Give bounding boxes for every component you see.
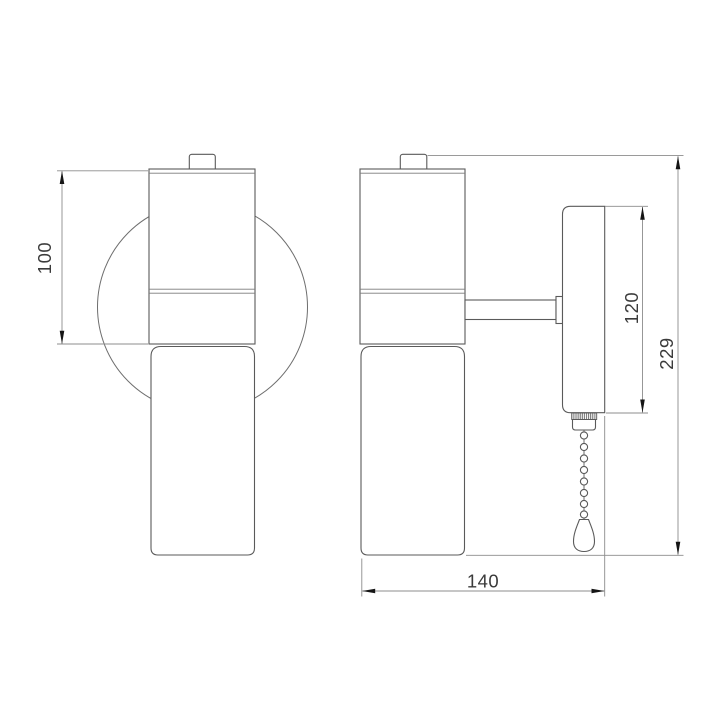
drawing-canvas: 100 — [0, 0, 720, 720]
chain-bead — [580, 466, 587, 473]
arrow-right-icon — [592, 589, 605, 594]
dimension-text-120: 120 — [621, 292, 642, 324]
chain-bead — [580, 432, 587, 439]
chain-bead — [580, 443, 587, 450]
arrow-up-icon — [640, 207, 645, 220]
technical-drawing-svg: 100 — [0, 0, 720, 720]
chain-bead — [580, 500, 587, 507]
arrow-down-icon — [676, 542, 681, 555]
chain-bead — [580, 511, 587, 518]
pull-cord-switch — [572, 413, 597, 552]
knurled-nut — [572, 413, 597, 420]
lamp-shade-side — [361, 347, 465, 556]
chain-bead — [580, 489, 587, 496]
dimension-text-229: 229 — [656, 337, 677, 369]
switch-housing — [573, 420, 596, 431]
arrow-up-icon — [60, 171, 65, 184]
arrow-down-icon — [640, 400, 645, 413]
dimension-text-100: 100 — [34, 242, 55, 274]
lamp-body-front — [149, 169, 255, 344]
dimension-100: 100 — [34, 171, 148, 344]
chain-bead — [580, 455, 587, 462]
side-view — [360, 154, 605, 555]
lamp-shade-front — [151, 347, 255, 556]
arrow-up-icon — [676, 156, 681, 169]
dimension-120: 120 — [605, 206, 648, 413]
front-view — [98, 154, 308, 555]
dimension-text-140: 140 — [467, 571, 499, 592]
lamp-body-side — [360, 169, 465, 344]
pull-knob — [574, 520, 595, 552]
arrow-left-icon — [362, 589, 375, 594]
arrow-down-icon — [60, 331, 65, 344]
wall-arm — [465, 300, 556, 320]
dimension-229: 229 — [428, 156, 684, 556]
wall-plate — [563, 206, 605, 412]
chain-bead — [580, 478, 587, 485]
arm-flange — [556, 297, 563, 324]
